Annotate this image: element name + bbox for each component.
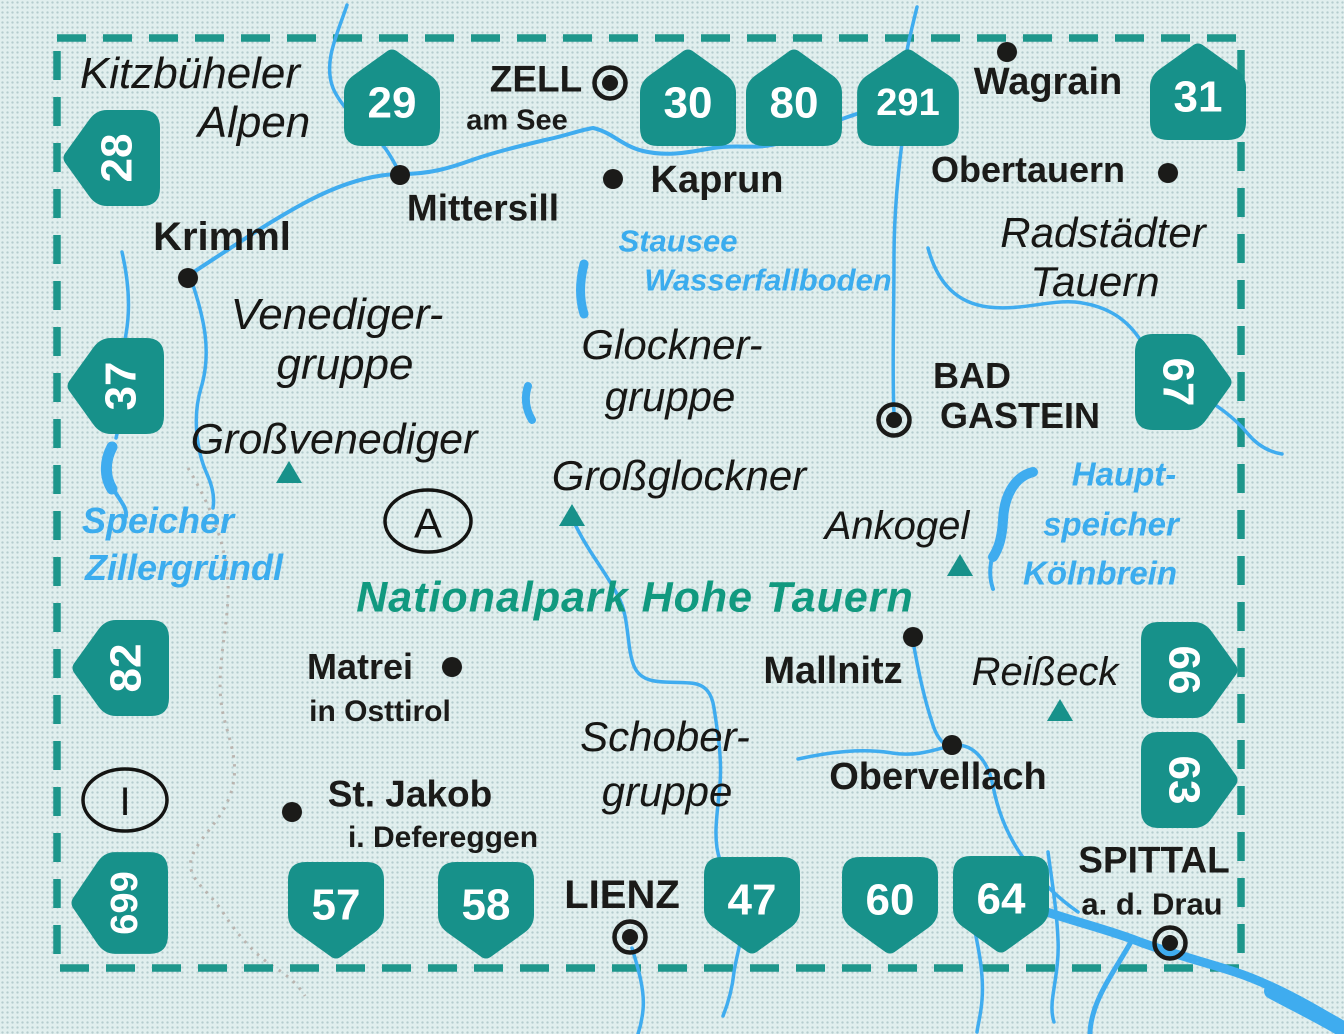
label-grossvenediger: Großvenediger (191, 419, 478, 462)
label-hauptspeicher-3: Kölnbrein (1023, 557, 1177, 590)
label-hauptspeicher-1: Haupt- (1072, 458, 1176, 491)
label-st-jakob-1: St. Jakob (328, 776, 493, 813)
town-ring-zell (595, 68, 626, 99)
lake-koelnbrein (993, 472, 1033, 557)
svg-text:37: 37 (97, 362, 146, 411)
label-spittal-1: SPITTAL (1078, 842, 1229, 879)
peak-triangle-icon (1047, 699, 1073, 721)
map-sheet-badge-699: 699 (72, 852, 169, 954)
svg-text:30: 30 (664, 79, 713, 128)
lake-zillergruendl (106, 447, 112, 489)
map-sheet-badge-64: 64 (953, 856, 1049, 953)
svg-text:699: 699 (104, 871, 146, 934)
label-mallnitz: Mallnitz (763, 652, 902, 690)
peak-triangle-icon (559, 504, 585, 526)
label-venedigergruppe-2: gruppe (276, 343, 413, 387)
map-sheet-badge-66: 66 (1141, 622, 1238, 718)
map-sheet-badge-30: 30 (640, 50, 736, 147)
label-obertauern: Obertauern (931, 152, 1125, 188)
map-sheet-badge-28: 28 (64, 110, 161, 206)
map-sheet-badge-47: 47 (704, 857, 800, 954)
label-bad-gastein-1: BAD (933, 358, 1011, 394)
town-dot (282, 802, 302, 822)
map-sheet-badge-80: 80 (746, 50, 842, 147)
town-dot (903, 627, 923, 647)
label-radstaedter-tauern-2: Tauern (1030, 261, 1159, 303)
lake-wasserfallboden (581, 264, 584, 314)
label-ankogel: Ankogel (825, 506, 970, 546)
label-matrei-1: Matrei (307, 649, 413, 685)
map-sheet-badge-60: 60 (842, 857, 938, 954)
label-reisseck: Reißeck (972, 652, 1119, 692)
label-schobergruppe-2: gruppe (602, 771, 733, 813)
label-zell-1: ZELL (490, 61, 582, 98)
label-kaprun: Kaprun (651, 161, 784, 199)
label-radstaedter-tauern-1: Radstädter (1000, 212, 1205, 254)
svg-text:31: 31 (1174, 73, 1223, 122)
label-glocknergruppe-1: Glockner- (581, 324, 762, 366)
river-path-drau (1272, 991, 1344, 1030)
peak-triangle-icon (947, 554, 973, 576)
label-hauptspeicher-2: speicher (1043, 508, 1179, 541)
town-dot (442, 657, 462, 677)
label-zell-2: am See (466, 107, 568, 136)
svg-text:47: 47 (728, 876, 777, 925)
river-path (192, 282, 214, 508)
label-glocknergruppe-2: gruppe (605, 376, 736, 418)
town-dot (178, 268, 198, 288)
label-mittersill: Mittersill (407, 190, 559, 227)
lake-small (526, 386, 532, 420)
map-canvas: A I 28 29 30 80 291 (0, 0, 1344, 1034)
label-matrei-2: in Osttirol (309, 697, 451, 727)
label-speicher-zillergruendl-1: Speicher (82, 503, 234, 539)
label-obervellach: Obervellach (829, 758, 1047, 796)
peak-triangle-icon (276, 461, 302, 483)
svg-text:291: 291 (876, 82, 939, 124)
label-nationalpark-hohe-tauern: Nationalpark Hohe Tauern (356, 577, 914, 620)
label-st-jakob-2: i. Defereggen (348, 823, 538, 853)
river-path (893, 114, 906, 414)
label-krimml: Krimml (153, 217, 291, 257)
town-dot (1158, 163, 1178, 183)
label-wagrain: Wagrain (974, 63, 1123, 101)
label-lienz: LIENZ (564, 875, 680, 915)
svg-text:64: 64 (977, 875, 1026, 924)
svg-text:57: 57 (312, 881, 361, 930)
label-spittal-2: a. d. Drau (1081, 889, 1222, 920)
map-sheet-badge-58: 58 (438, 862, 534, 959)
country-a-letter: A (414, 500, 442, 547)
map-sheet-badge-291: 291 (857, 50, 959, 147)
label-schobergruppe-1: Schober- (580, 716, 750, 758)
svg-text:29: 29 (368, 79, 417, 128)
svg-text:58: 58 (462, 881, 511, 930)
svg-text:60: 60 (866, 876, 915, 925)
country-i-letter: I (119, 780, 130, 824)
label-kitzbueheler-alpen-1: Kitzbüheler (80, 52, 300, 96)
label-kitzbueheler-alpen-2: Alpen (198, 101, 311, 145)
map-sheet-badge-63: 63 (1141, 732, 1238, 828)
river-path (990, 558, 993, 589)
town-dot (390, 165, 410, 185)
svg-text:28: 28 (93, 134, 142, 183)
svg-text:82: 82 (102, 644, 151, 693)
river-path (1090, 940, 1132, 1034)
label-stausee-1: Stausee (619, 226, 738, 257)
svg-text:67: 67 (1154, 358, 1203, 407)
town-dot (942, 735, 962, 755)
town-ring-lienz (615, 922, 646, 953)
map-sheet-badge-31: 31 (1150, 44, 1246, 141)
map-sheet-badge-29: 29 (344, 50, 440, 147)
map-sheet-badge-37: 37 (68, 338, 165, 434)
label-stausee-2: Wasserfallboden (644, 265, 892, 296)
river-path (632, 948, 643, 1034)
svg-text:80: 80 (770, 79, 819, 128)
svg-text:66: 66 (1160, 646, 1209, 695)
label-venedigergruppe-1: Venediger- (231, 293, 444, 337)
map-sheet-badge-57: 57 (288, 862, 384, 959)
town-dot (603, 169, 623, 189)
label-grossglockner: Großglockner (552, 455, 806, 497)
map-sheet-badge-67: 67 (1135, 334, 1232, 430)
label-bad-gastein-2: GASTEIN (940, 398, 1100, 434)
map-sheet-badge-82: 82 (73, 620, 170, 716)
river-path (913, 641, 950, 747)
label-speicher-zillergruendl-2: Zillergründl (85, 550, 283, 586)
town-dot (997, 42, 1017, 62)
river-path (1048, 852, 1058, 1022)
svg-text:63: 63 (1160, 756, 1209, 805)
